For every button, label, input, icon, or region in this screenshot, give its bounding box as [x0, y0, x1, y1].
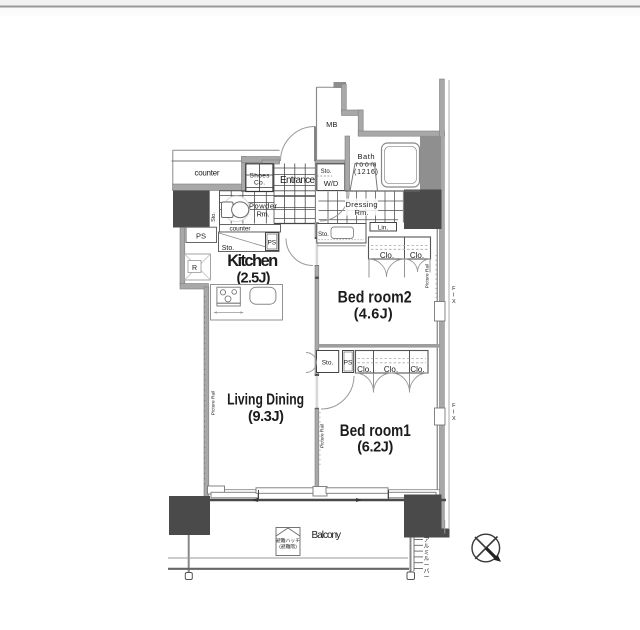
svg-text:Rm.: Rm.	[257, 210, 270, 219]
svg-text:Rm.: Rm.	[355, 208, 369, 217]
svg-text:Clo.: Clo.	[410, 365, 424, 374]
svg-text:Picture Rail: Picture Rail	[425, 264, 431, 289]
svg-text:(6.2J): (6.2J)	[357, 440, 393, 456]
svg-text:Clo.: Clo.	[357, 365, 371, 374]
svg-text:Clo.: Clo.	[380, 251, 394, 260]
svg-text:PS: PS	[267, 240, 276, 247]
svg-text:ー: ー	[424, 575, 430, 581]
svg-text:Bed room1: Bed room1	[340, 422, 411, 440]
svg-text:MB: MB	[326, 120, 337, 129]
svg-text:Kitchen: Kitchen	[227, 252, 278, 270]
svg-text:(1216): (1216)	[354, 169, 378, 176]
svg-text:Sto.: Sto.	[318, 232, 329, 238]
svg-text:R: R	[192, 265, 197, 272]
svg-text:Picture Rail: Picture Rail	[320, 424, 326, 449]
svg-text:Balcony: Balcony	[312, 530, 342, 541]
svg-text:X: X	[452, 416, 456, 422]
svg-text:Entrance: Entrance	[280, 175, 315, 186]
svg-text:X: X	[452, 299, 456, 305]
svg-text:ー: ー	[424, 563, 430, 569]
svg-text:Co.: Co.	[254, 180, 265, 187]
svg-text:Living Dining: Living Dining	[227, 392, 304, 409]
svg-text:ル: ル	[424, 544, 430, 550]
svg-text:(4.6J): (4.6J)	[354, 307, 393, 323]
svg-text:PS: PS	[196, 232, 206, 241]
svg-text:ル: ル	[424, 557, 430, 563]
svg-text:Shoes: Shoes	[250, 173, 271, 180]
svg-text:ミ: ミ	[424, 550, 430, 556]
svg-text:Sto.: Sto.	[322, 360, 334, 367]
svg-text:Clo.: Clo.	[410, 251, 424, 260]
svg-text:ア: ア	[424, 537, 430, 544]
svg-text:Lin.: Lin.	[378, 225, 389, 232]
svg-text:counter: counter	[195, 169, 220, 178]
svg-text:Picture Rail: Picture Rail	[211, 391, 217, 416]
svg-text:counter: counter	[230, 226, 252, 233]
svg-text:バ: バ	[424, 568, 430, 575]
svg-text:Sto.: Sto.	[222, 245, 235, 252]
svg-text:Bed room2: Bed room2	[338, 289, 412, 307]
svg-text:Sto.: Sto.	[321, 169, 332, 175]
svg-text:(避難階): (避難階)	[279, 543, 297, 550]
svg-text:PS: PS	[344, 360, 353, 367]
svg-text:Sto.: Sto.	[211, 212, 217, 222]
svg-text:(9.3J): (9.3J)	[248, 409, 284, 425]
svg-text:避難ハッチ: 避難ハッチ	[276, 537, 300, 544]
svg-text:W/D: W/D	[324, 179, 339, 188]
